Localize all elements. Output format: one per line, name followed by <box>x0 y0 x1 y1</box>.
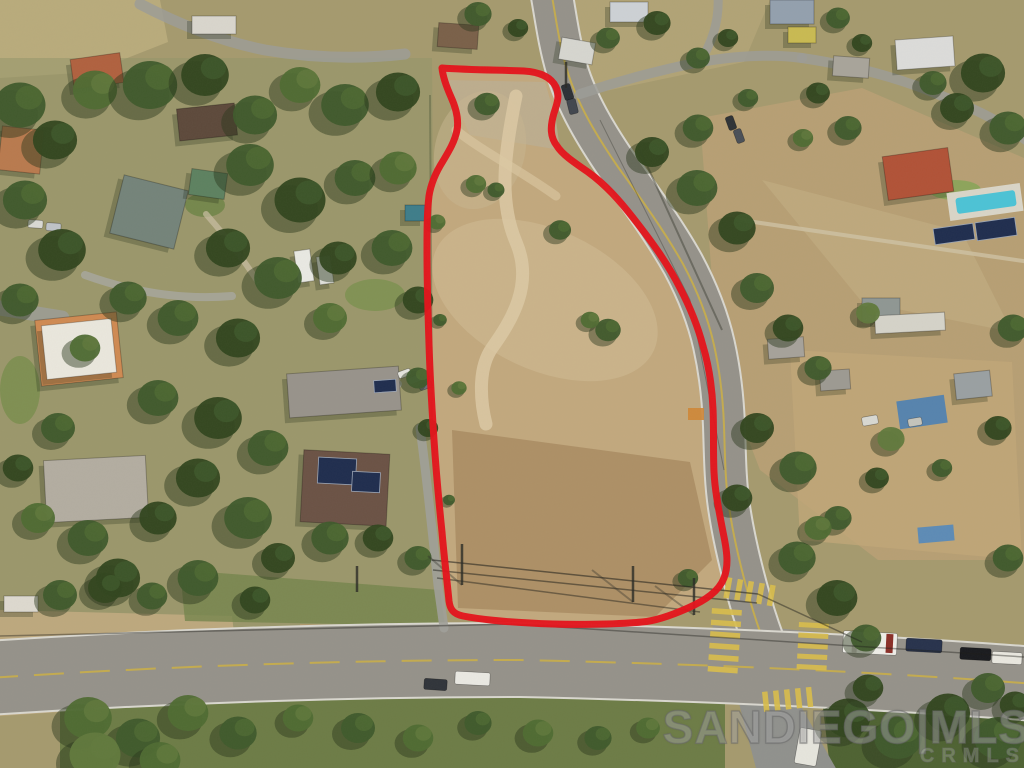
grain-overlay <box>0 0 1024 768</box>
aerial-photo: SANDIEGO|MLS CRMLS <box>0 0 1024 768</box>
grain <box>0 0 1024 768</box>
aerial-photo-canvas <box>0 0 1024 768</box>
